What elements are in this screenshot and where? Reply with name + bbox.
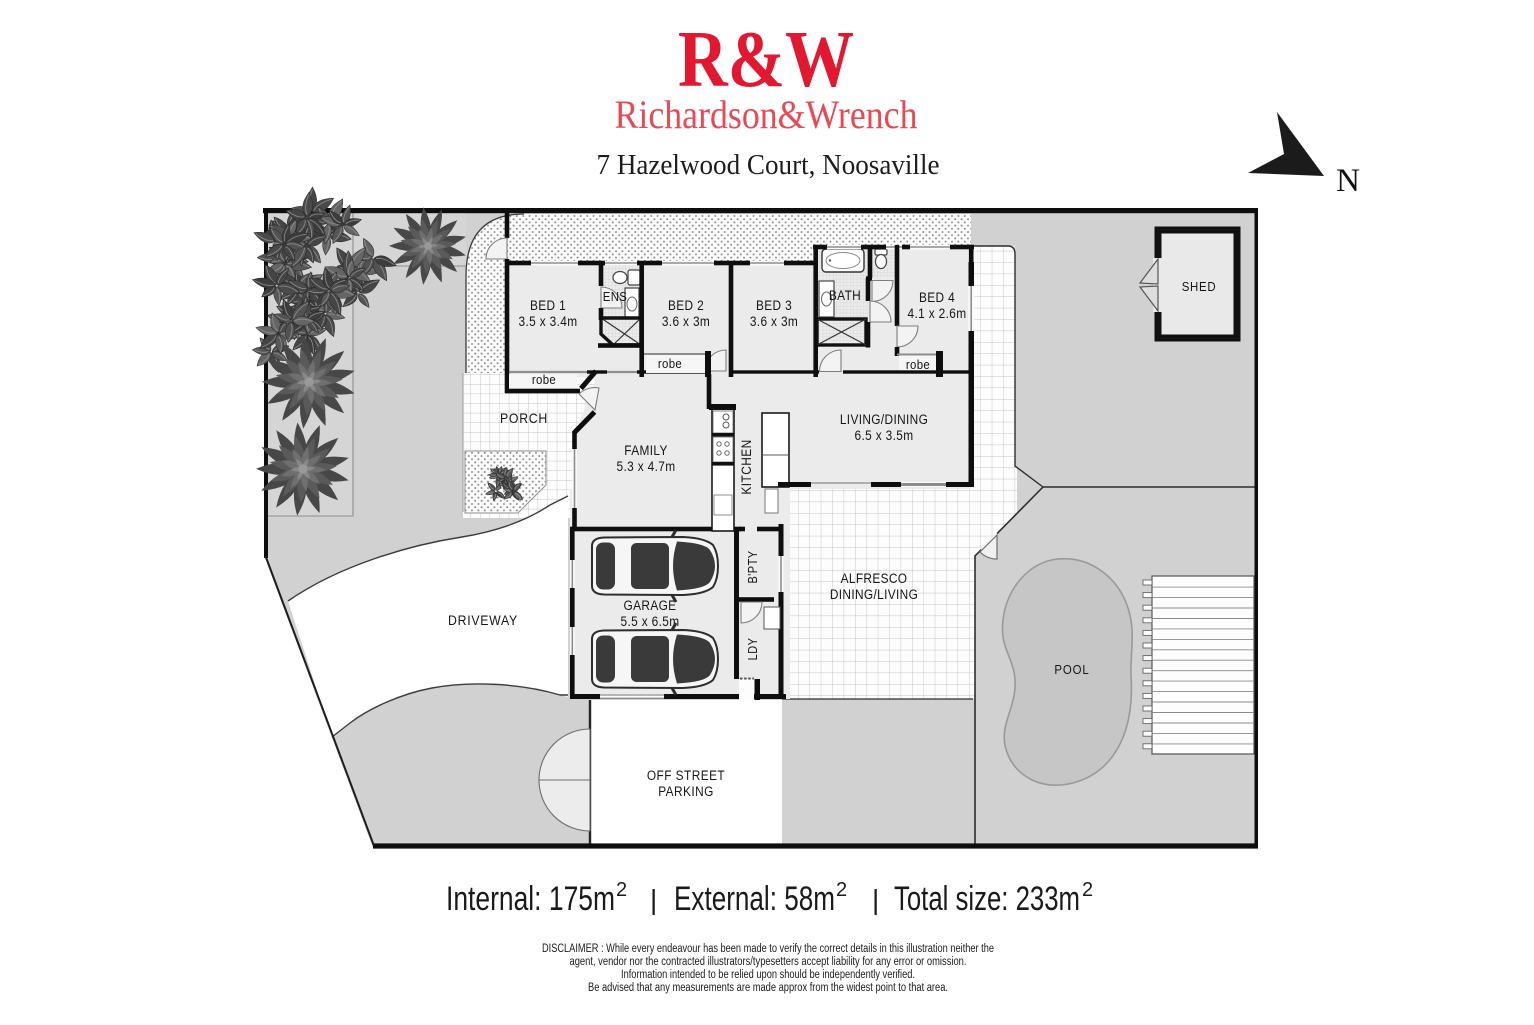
svg-text:KITCHEN: KITCHEN	[738, 439, 754, 494]
svg-text:Total size: 233m: Total size: 233m	[894, 880, 1080, 918]
svg-text:FAMILY: FAMILY	[624, 442, 668, 458]
svg-text:BED 1: BED 1	[530, 297, 566, 313]
svg-text:BATH: BATH	[829, 287, 861, 303]
svg-text:LIVING/DINING: LIVING/DINING	[840, 411, 928, 427]
svg-text:4.1 x 2.6m: 4.1 x 2.6m	[908, 305, 967, 321]
svg-text:ENS: ENS	[603, 289, 628, 304]
svg-text:3.6 x 3m: 3.6 x 3m	[750, 313, 798, 329]
svg-text:PARKING: PARKING	[658, 783, 714, 799]
svg-text:Be advised that any measuremen: Be advised that any measurements are mad…	[588, 982, 948, 994]
svg-text:|: |	[650, 884, 657, 915]
svg-text:LDY: LDY	[746, 638, 760, 661]
svg-text:PORCH: PORCH	[500, 410, 548, 426]
svg-text:agent, vendor nor the contract: agent, vendor nor the contracted illustr…	[570, 956, 967, 968]
svg-text:BED 2: BED 2	[668, 297, 704, 313]
svg-text:3.6 x 3m: 3.6 x 3m	[662, 313, 710, 329]
svg-text:Information intended to be rel: Information intended to be relied upon s…	[621, 969, 915, 981]
svg-text:DRIVEWAY: DRIVEWAY	[448, 612, 518, 628]
svg-text:External: 58m: External: 58m	[674, 880, 835, 918]
svg-text:N: N	[1336, 163, 1360, 199]
svg-text:ALFRESCO: ALFRESCO	[841, 570, 908, 586]
svg-text:DISCLAIMER : While every endea: DISCLAIMER : While every endeavour has b…	[542, 943, 994, 955]
svg-text:6.5 x 3.5m: 6.5 x 3.5m	[855, 427, 914, 443]
svg-text:Richardson&Wrench: Richardson&Wrench	[615, 92, 918, 137]
svg-text:OFF STREET: OFF STREET	[647, 767, 725, 783]
svg-text:BED 4: BED 4	[919, 289, 955, 305]
svg-text:B'PTY: B'PTY	[746, 550, 760, 583]
svg-text:|: |	[872, 884, 879, 915]
svg-text:robe: robe	[906, 357, 930, 372]
svg-text:3.5 x 3.4m: 3.5 x 3.4m	[519, 313, 578, 329]
svg-text:POOL: POOL	[1054, 662, 1089, 677]
svg-text:2: 2	[836, 879, 847, 901]
svg-text:7 Hazelwood Court, Noosaville: 7 Hazelwood Court, Noosaville	[597, 149, 940, 181]
svg-text:SHED: SHED	[1182, 279, 1217, 294]
svg-text:robe: robe	[658, 356, 682, 371]
svg-text:2: 2	[1082, 879, 1093, 901]
svg-text:5.5 x 6.5m: 5.5 x 6.5m	[621, 613, 680, 629]
svg-text:5.3 x 4.7m: 5.3 x 4.7m	[617, 458, 676, 474]
svg-text:robe: robe	[532, 372, 556, 387]
svg-text:2: 2	[616, 879, 627, 901]
svg-text:BED 3: BED 3	[756, 297, 792, 313]
svg-text:DINING/LIVING: DINING/LIVING	[830, 586, 918, 602]
svg-text:R&W: R&W	[678, 16, 854, 104]
svg-text:Internal: 175m: Internal: 175m	[446, 880, 615, 918]
svg-text:GARAGE: GARAGE	[624, 597, 677, 613]
